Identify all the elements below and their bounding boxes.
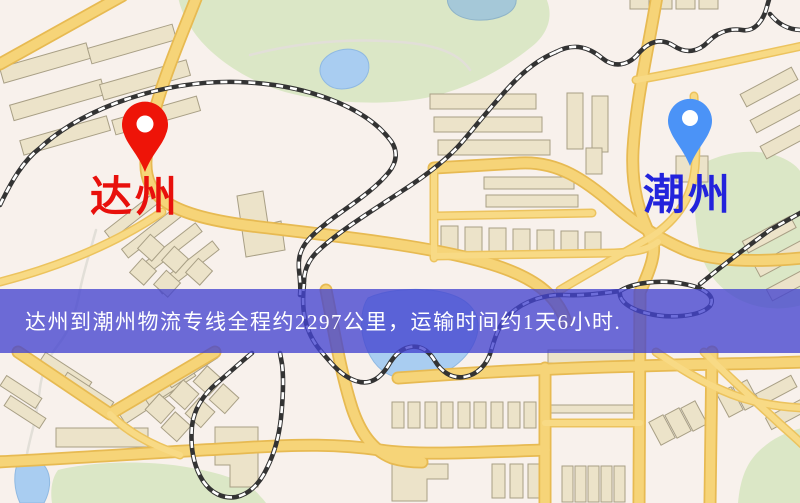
origin-label: 达州 [90,177,180,219]
destination-label: 潮州 [643,175,733,217]
origin-pin-icon[interactable] [122,102,168,172]
route-banner: 达州到潮州物流专线全程约2297公里，运输时间约1天6小时. [0,289,800,353]
map-container: 达州 潮州 达州到潮州物流专线全程约2297公里，运输时间约1天6小时. [0,0,800,503]
route-banner-text: 达州到潮州物流专线全程约2297公里，运输时间约1天6小时. [0,306,621,336]
map-background [0,0,800,503]
